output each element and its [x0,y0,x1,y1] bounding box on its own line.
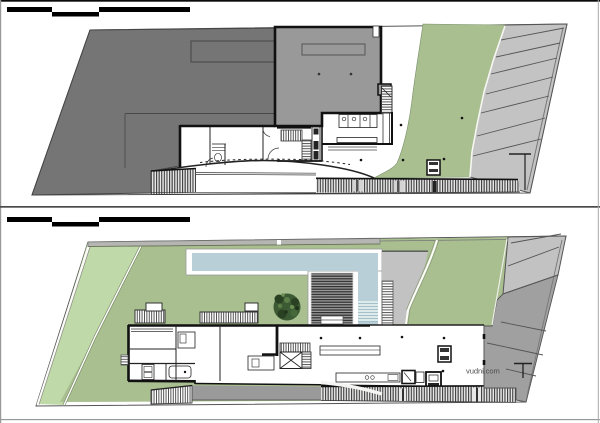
svg-text:vudni.com: vudni.com [466,367,500,376]
